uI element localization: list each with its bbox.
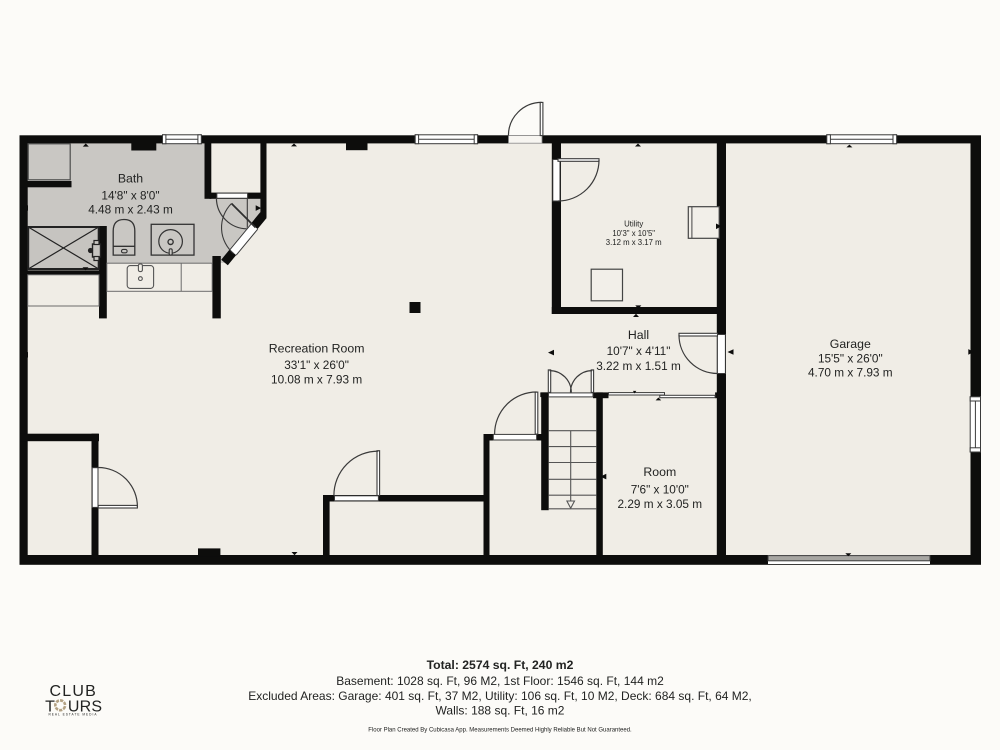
svg-text:Floor Plan Created By Cubicasa: Floor Plan Created By Cubicasa App. Meas…: [368, 728, 632, 734]
svg-text:Utility: Utility: [624, 220, 643, 229]
svg-text:Bath: Bath: [118, 171, 143, 185]
svg-text:Garage: Garage: [830, 337, 871, 351]
svg-text:Walls: 188 sq. Ft, 16 m2: Walls: 188 sq. Ft, 16 m2: [436, 704, 565, 718]
svg-text:Hall: Hall: [628, 328, 649, 342]
svg-text:10'7" x 4'11": 10'7" x 4'11": [607, 344, 671, 358]
svg-text:CLUB: CLUB: [50, 683, 97, 700]
svg-text:15'5" x 26'0": 15'5" x 26'0": [818, 351, 883, 365]
svg-text:33'1" x 26'0": 33'1" x 26'0": [284, 358, 349, 372]
svg-text:10.08 m x 7.93 m: 10.08 m x 7.93 m: [271, 373, 362, 387]
svg-text:3.22 m x 1.51 m: 3.22 m x 1.51 m: [596, 359, 681, 373]
svg-text:Recreation Room: Recreation Room: [269, 341, 365, 355]
svg-text:2.29 m x 3.05 m: 2.29 m x 3.05 m: [618, 497, 703, 511]
svg-text:Room: Room: [643, 465, 676, 479]
svg-text:Total: 2574 sq. Ft, 240 m2: Total: 2574 sq. Ft, 240 m2: [427, 658, 574, 672]
svg-text:Excluded Areas: Garage: 401 sq: Excluded Areas: Garage: 401 sq. Ft, 37 M…: [248, 689, 752, 703]
svg-text:4.48 m x 2.43 m: 4.48 m x 2.43 m: [88, 203, 173, 217]
svg-text:7'6" x 10'0": 7'6" x 10'0": [631, 482, 689, 496]
svg-text:4.70 m x 7.93 m: 4.70 m x 7.93 m: [808, 366, 893, 380]
svg-text:REAL ESTATE MEDIA: REAL ESTATE MEDIA: [49, 713, 98, 717]
svg-text:10'3" x 10'5": 10'3" x 10'5": [612, 229, 655, 238]
svg-text:Basement: 1028 sq. Ft, 96 M2,: Basement: 1028 sq. Ft, 96 M2, 1st Floor:…: [336, 674, 664, 688]
svg-text:3.12 m x 3.17 m: 3.12 m x 3.17 m: [606, 238, 662, 247]
svg-text:14'8" x 8'0": 14'8" x 8'0": [101, 188, 159, 202]
